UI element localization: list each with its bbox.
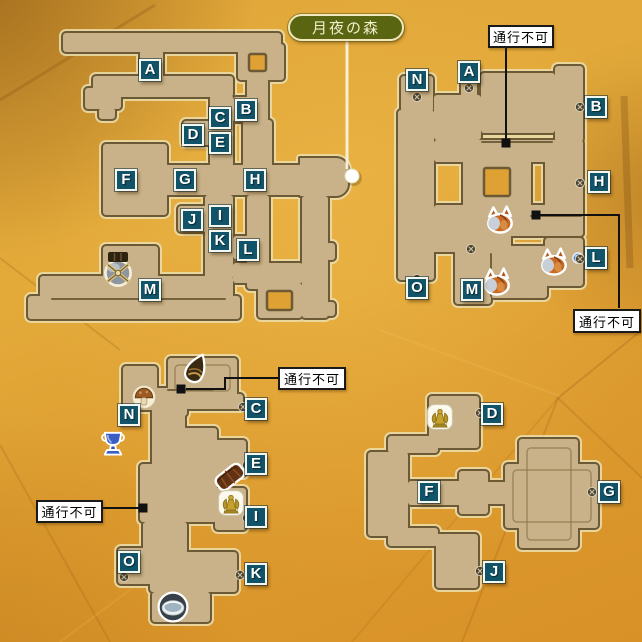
map-marker-upper_west-d: D — [182, 124, 204, 146]
map-marker-upper_west-j: J — [181, 209, 203, 231]
map-marker-lower_west-o: O — [118, 551, 140, 573]
map-marker-upper_east-n: N — [406, 69, 428, 91]
map-marker-upper_west-h: H — [244, 169, 266, 191]
map-marker-upper_east-a: A — [458, 61, 480, 83]
map-marker-upper_east-m: M — [461, 279, 483, 301]
map-marker-lower_east-f: F — [418, 481, 440, 503]
impassable-label-0: 通行不可 — [488, 25, 554, 48]
impassable-label-1: 通行不可 — [573, 309, 641, 333]
map-marker-lower_west-k: K — [245, 563, 267, 585]
map-marker-lower_west-e: E — [245, 453, 267, 475]
map-marker-lower_east-j: J — [483, 561, 505, 583]
map-overlays: ABCDEFGHJIKLMNABHLMONCEIOKDFGJ通行不可通行不可通行… — [0, 0, 642, 642]
map-marker-lower_east-g: G — [598, 481, 620, 503]
map-marker-upper_west-b: B — [235, 99, 257, 121]
map-marker-lower_west-n: N — [118, 404, 140, 426]
map-marker-upper_west-i: I — [209, 205, 231, 227]
map-marker-upper_east-b: B — [585, 96, 607, 118]
map-marker-lower_west-c: C — [245, 398, 267, 420]
game-map-screen: 月夜の森 ABCDEFGHJIKLMNABHLMONCEIOKDFGJ通行不可通… — [0, 0, 642, 642]
map-marker-upper_west-k: K — [209, 230, 231, 252]
impassable-label-2: 通行不可 — [278, 367, 346, 390]
map-marker-upper_west-m: M — [139, 279, 161, 301]
map-marker-upper_east-l: L — [585, 247, 607, 269]
map-marker-upper_west-f: F — [115, 169, 137, 191]
map-marker-upper_west-l: L — [237, 239, 259, 261]
map-marker-upper_east-o: O — [406, 277, 428, 299]
map-marker-upper_east-h: H — [588, 171, 610, 193]
map-marker-upper_west-g: G — [174, 169, 196, 191]
map-marker-upper_west-c: C — [209, 107, 231, 129]
map-marker-upper_west-e: E — [209, 132, 231, 154]
impassable-label-3: 通行不可 — [36, 500, 103, 523]
map-marker-lower_east-d: D — [481, 403, 503, 425]
map-marker-upper_west-a: A — [139, 59, 161, 81]
map-marker-lower_west-i: I — [245, 506, 267, 528]
